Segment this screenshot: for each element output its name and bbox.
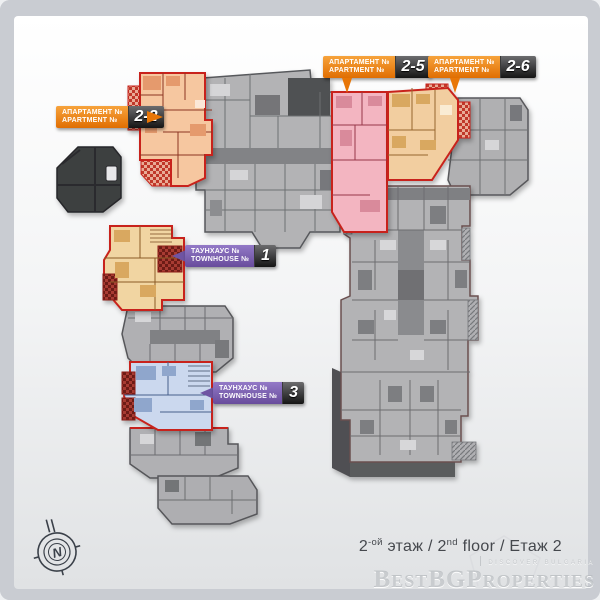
unit-townhouse-3[interactable] xyxy=(122,362,212,430)
callout-apartment-2-5[interactable]: АПАРТАМЕНТ №APARTMENT № 2-5 xyxy=(323,56,431,78)
callout-arrow xyxy=(147,111,163,123)
watermark-tagline: discover bulgaria xyxy=(480,556,595,566)
callout-townhouse-3[interactable]: ТАУНХАУС №TOWNHOUSE № 3 xyxy=(213,382,304,404)
unit-apartment-2-5[interactable] xyxy=(332,92,387,232)
floorplan-page: N АПАРТАМЕНТ №APARTMENT № 2-2 АПАРТАМЕНТ… xyxy=(0,0,600,600)
callout-townhouse-1[interactable]: ТАУНХАУС №TOWNHOUSE № 1 xyxy=(185,245,276,267)
unit-number-badge: 2-5 xyxy=(395,56,431,78)
callout-label: АПАРТАМЕНТ №APARTMENT № xyxy=(56,106,128,128)
callout-arrow xyxy=(450,78,460,93)
unit-apartment-2-2[interactable] xyxy=(128,73,212,186)
unit-number-badge: 3 xyxy=(282,382,304,404)
building-central xyxy=(196,70,347,248)
floor-caption-en-sup: nd xyxy=(447,537,458,548)
floorplan-canvas: N xyxy=(0,0,600,600)
callout-label: ТАУНХАУС №TOWNHOUSE № xyxy=(185,245,254,267)
floor-caption-ru-sup: -ой xyxy=(368,537,383,548)
unit-number-badge: 1 xyxy=(254,245,276,267)
unit-number-badge: 2-6 xyxy=(500,56,536,78)
floor-caption-ru-num: 2 xyxy=(359,538,368,555)
callout-apartment-2-6[interactable]: АПАРТАМЕНТ №APARTMENT № 2-6 xyxy=(428,56,536,78)
unit-townhouse-1[interactable] xyxy=(103,226,184,310)
watermark-brand: BestBGProperties xyxy=(374,569,595,591)
callout-label: АПАРТАМЕНТ №APARTMENT № xyxy=(323,56,395,78)
watermark: discover bulgaria BestBGProperties xyxy=(374,551,595,591)
callout-arrow xyxy=(342,78,352,93)
callout-label: АПАРТАМЕНТ №APARTMENT № xyxy=(428,56,500,78)
callout-label: ТАУНХАУС №TOWNHOUSE № xyxy=(213,382,282,404)
callout-arrow xyxy=(172,250,186,262)
callout-arrow xyxy=(200,387,214,399)
